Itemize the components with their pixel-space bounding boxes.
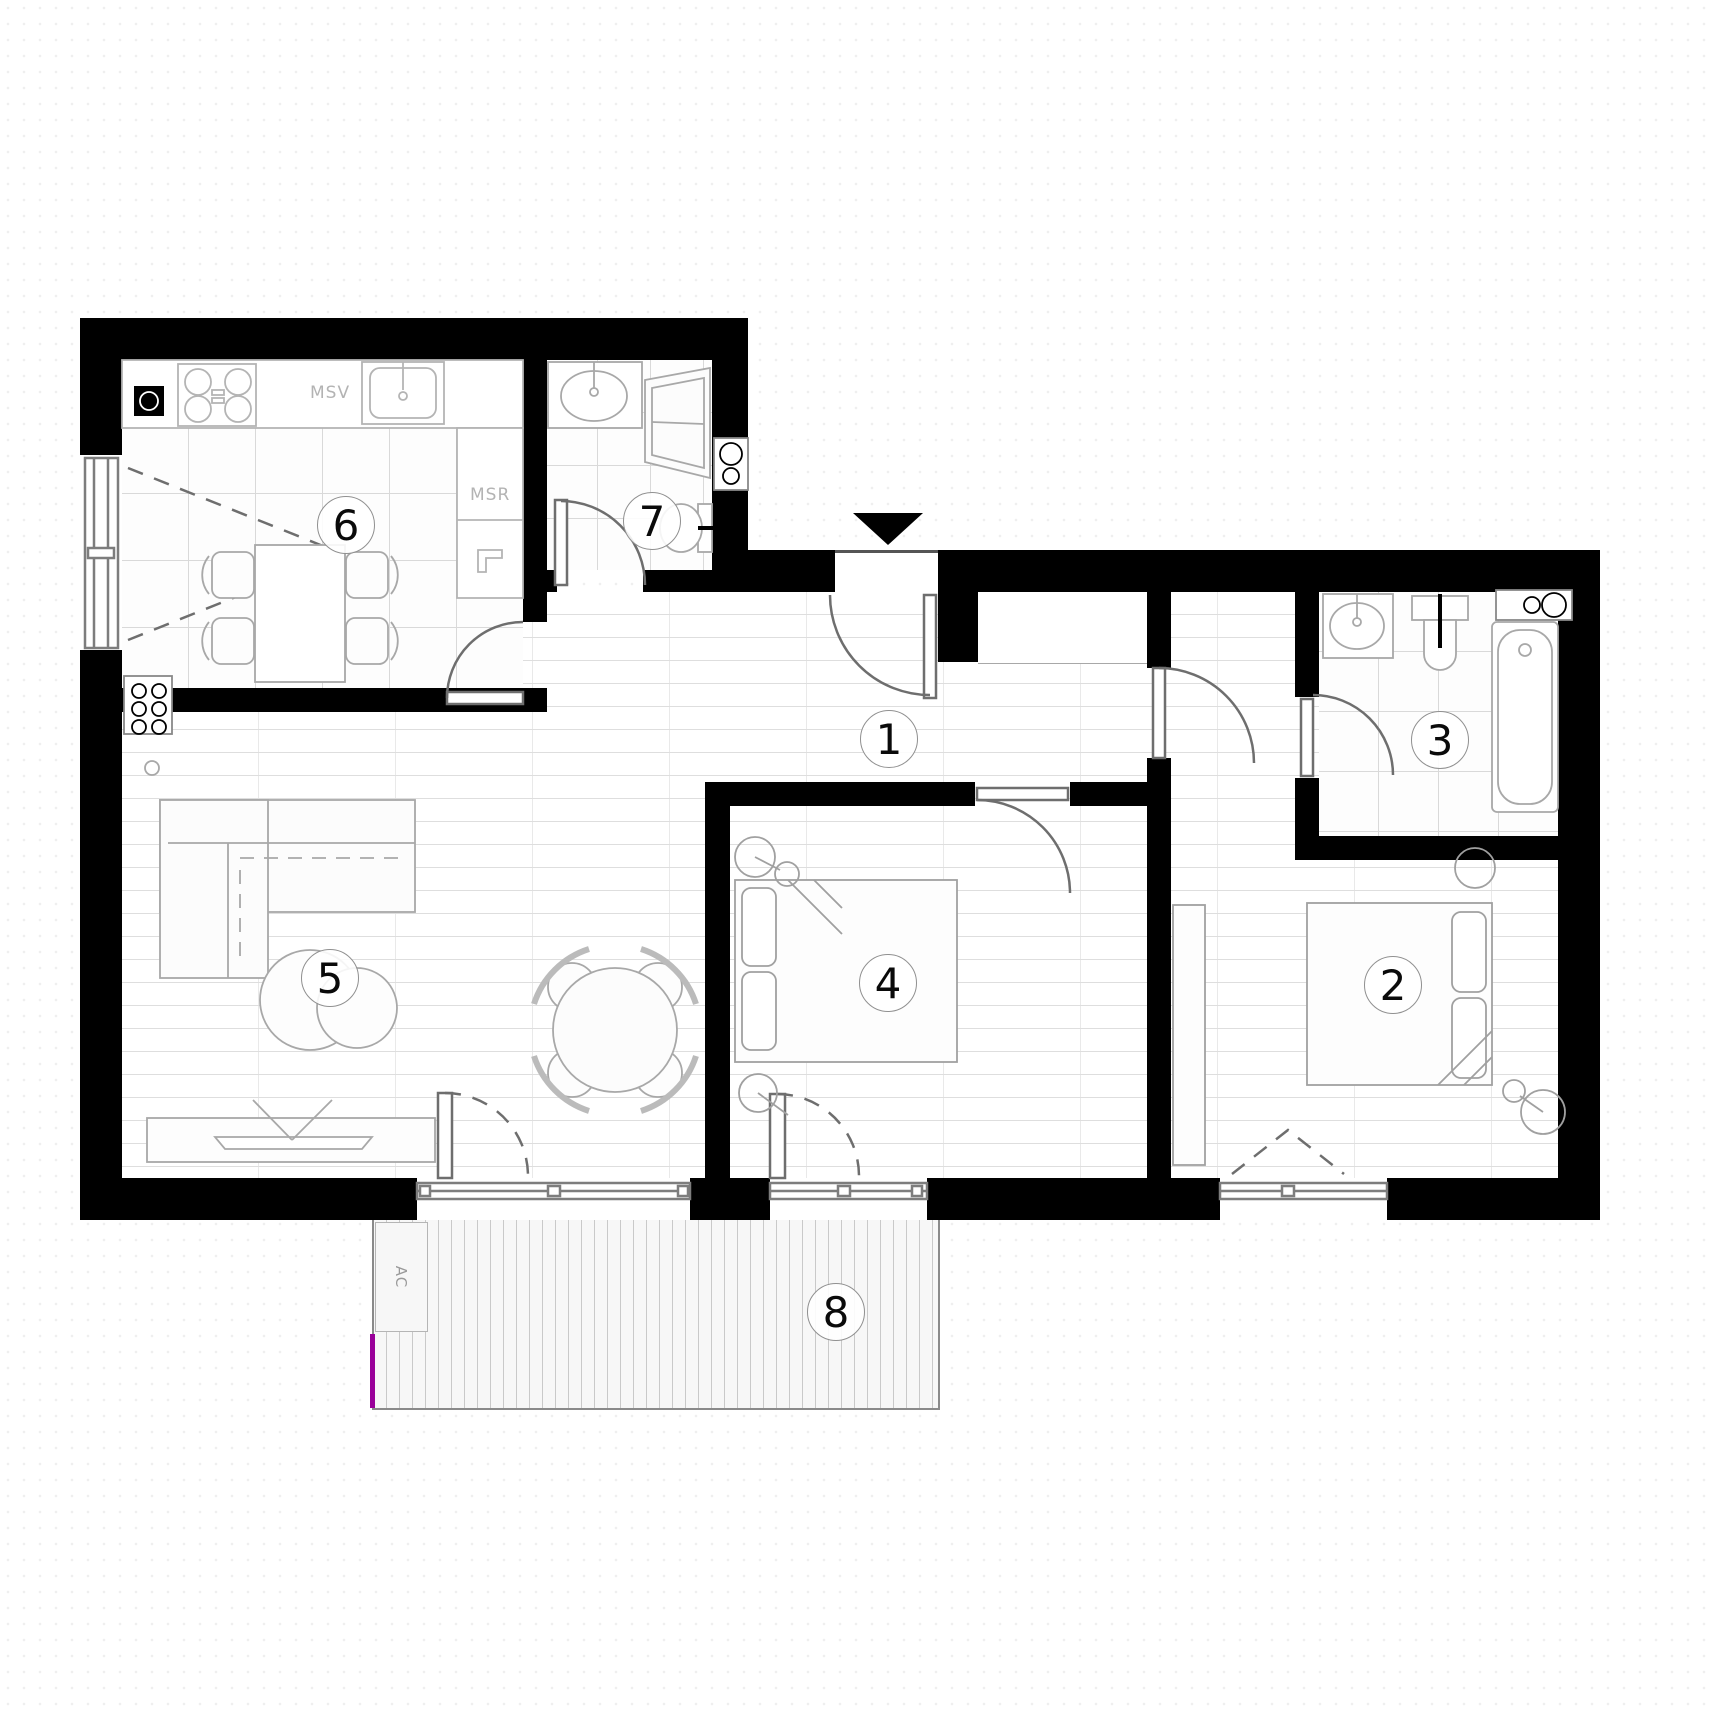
sofa-icon: [160, 800, 415, 978]
room-number: 4: [875, 959, 902, 1008]
kitchen-counter-side: [457, 428, 523, 598]
bathroom-door-icon: [1301, 695, 1393, 776]
room-label-3: 3: [1411, 711, 1469, 769]
bath-toilet-icon: [1412, 594, 1468, 670]
round-table-icon: [534, 949, 696, 1111]
room-label-4: 4: [859, 954, 917, 1012]
kitchen-vent-icon: [134, 386, 164, 416]
room-number: 7: [639, 497, 666, 546]
floor-plan: 1 2 3 4 5 6 7 8 MSV MSR AC: [0, 0, 1718, 1718]
room-label-7: 7: [623, 492, 681, 550]
ac-unit: AC: [375, 1222, 428, 1332]
bath-sink-icon: [1323, 594, 1393, 658]
room-label-5: 5: [301, 949, 359, 1007]
entrance-door-icon: [830, 595, 936, 698]
balcony-accent-line: [370, 1334, 375, 1408]
room-number: 5: [317, 954, 344, 1003]
fixtures-layer: [0, 0, 1718, 1718]
room-number: 2: [1380, 961, 1407, 1010]
label-msr: MSR: [470, 485, 510, 505]
bedroom4-furniture: [735, 837, 957, 1115]
room-label-1: 1: [860, 710, 918, 768]
label-ac: AC: [392, 1266, 410, 1288]
wardrobe-icon: [1173, 905, 1205, 1165]
bath-shaft-icon: [1496, 590, 1572, 620]
window-bed2-tilt-icon: [1232, 1130, 1344, 1174]
entrance-arrow-icon: [853, 513, 923, 545]
room-number: 3: [1427, 716, 1454, 765]
bathroom-fixtures: [1323, 590, 1572, 812]
room-number: 1: [876, 715, 903, 764]
wc-shaft-icon: [714, 438, 748, 490]
bed4-icon: [735, 880, 957, 1062]
kitchen-fixtures: [122, 360, 523, 734]
room-number: 8: [823, 1288, 850, 1337]
tv-unit-icon: [147, 1100, 435, 1162]
bedroom2-furniture: [1173, 848, 1565, 1165]
bed4-lamp-icon: [735, 837, 799, 886]
corridor-door-icon: [1153, 668, 1254, 763]
dining-table-icon: [202, 545, 398, 682]
balcony-door-bed4-icon: [770, 1094, 859, 1178]
balcony-door-living-icon: [438, 1093, 528, 1178]
room-label-8: 8: [807, 1283, 865, 1341]
room-label-2: 2: [1364, 956, 1422, 1014]
wc-sink-icon: [548, 362, 642, 428]
room-label-6: 6: [317, 496, 375, 554]
room-number: 6: [333, 501, 360, 550]
bed2-floor-lamp-icon: [1503, 1080, 1565, 1134]
bedroom4-door-icon: [977, 788, 1070, 893]
balcony-slider-bed4-icon: [770, 1183, 927, 1199]
kitchen-door-icon: [447, 622, 523, 704]
balcony-slider-living-icon: [417, 1183, 690, 1199]
shower-icon: [645, 368, 710, 478]
living-furniture: [145, 761, 696, 1162]
doorstop-icon: [145, 761, 159, 775]
bathtub-icon: [1492, 622, 1558, 812]
window-bed2-frame-icon: [1220, 1183, 1387, 1199]
shaft-circles-icon: [124, 676, 172, 734]
window-kitchen-frame-icon: [85, 458, 118, 648]
label-msv: MSV: [310, 383, 350, 403]
bed2-lamp-top-icon: [1455, 848, 1495, 888]
